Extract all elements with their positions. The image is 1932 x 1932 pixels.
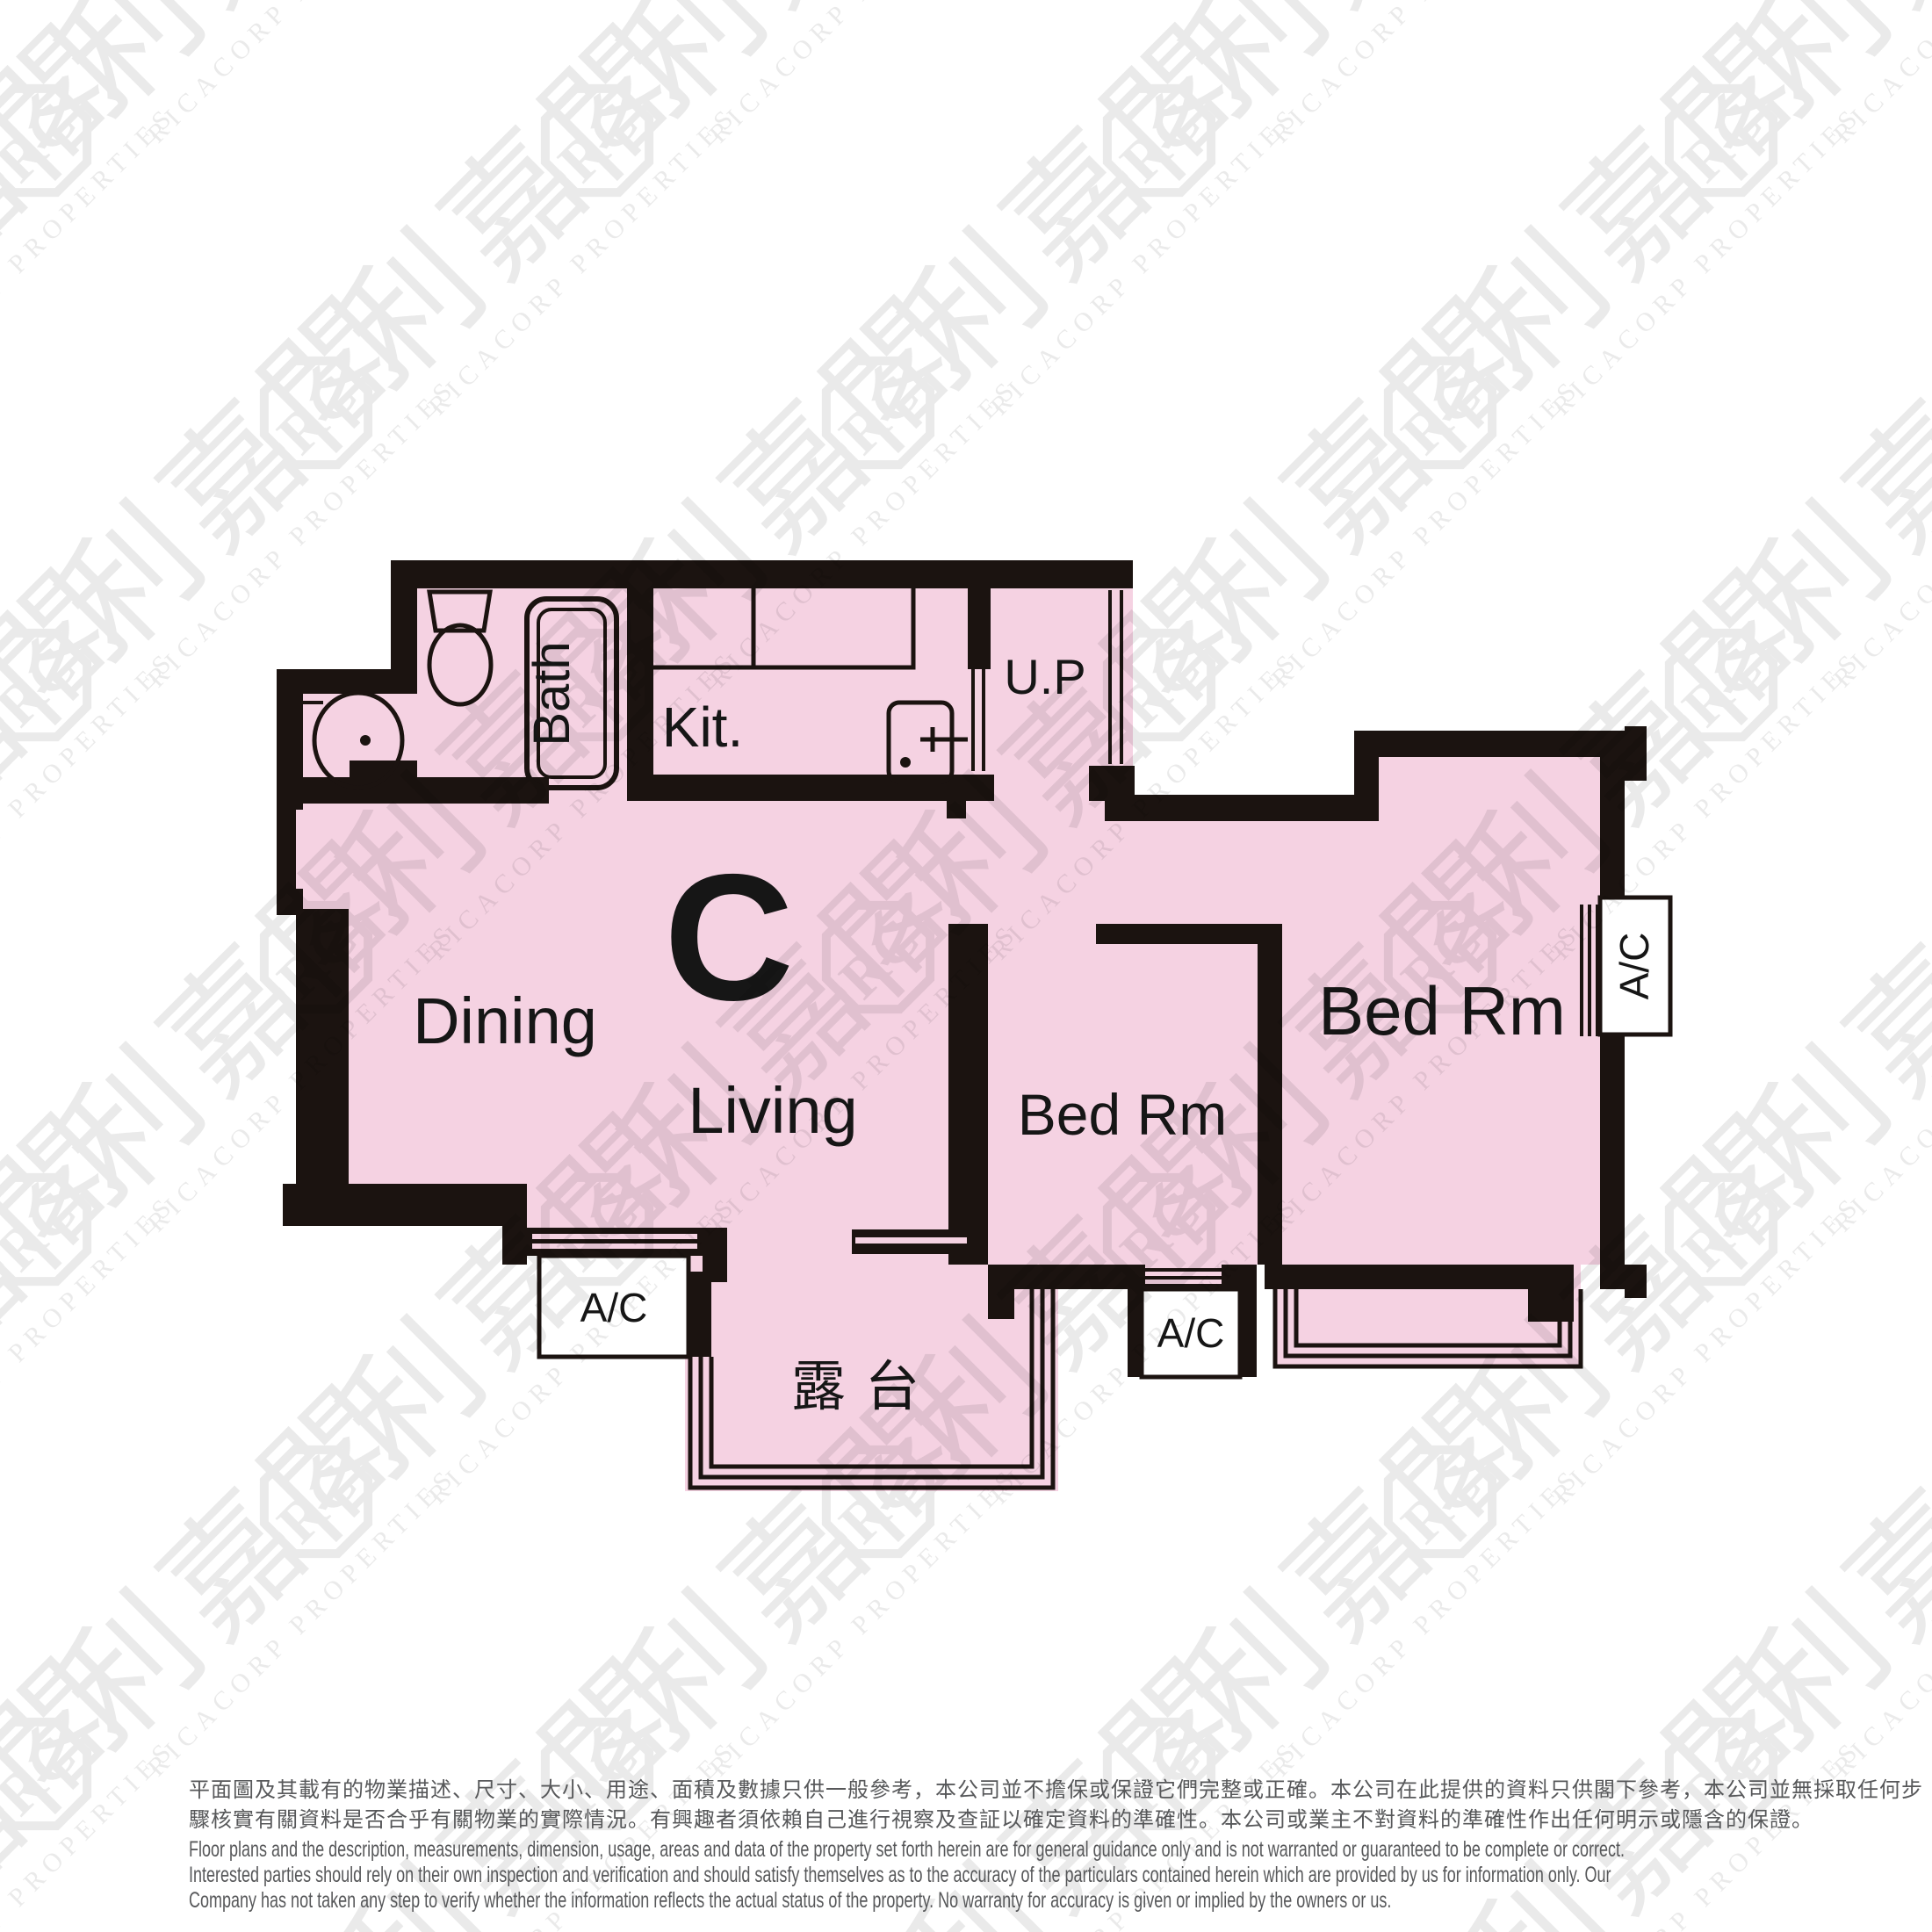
disclaimer-line: 驟核實有關資料是否合乎有關物業的實際情況。有興趣者須依賴自己進行視察及查証以確定… — [189, 1806, 1923, 1835]
disclaimer-line: 平面圖及其載有的物業描述、尺寸、大小、用途、面積及數據只供一般參考，本公司並不擔… — [189, 1776, 1923, 1806]
wall-segment — [1265, 1265, 1528, 1289]
wall-segment — [968, 588, 991, 669]
disclaimer-line: Interested parties should rely on their … — [189, 1863, 1625, 1888]
wall-segment — [1096, 924, 1269, 944]
basin-drain-icon — [360, 735, 371, 746]
floorplan-page: C Dining Living Kit. Bath U.P Bed Rm Bed… — [0, 0, 1932, 1932]
wall-segment — [688, 1272, 711, 1357]
disclaimer-english: Floor plans and the description, measure… — [189, 1837, 1932, 1914]
ac-label: A/C — [1611, 933, 1657, 1000]
wall-segment — [391, 588, 417, 669]
balcony-door-window — [855, 1237, 967, 1244]
disclaimer-chinese: 平面圖及其載有的物業描述、尺寸、大小、用途、面積及數據只供一般參考，本公司並不擔… — [189, 1776, 1923, 1835]
disclaimer-line: Floor plans and the description, measure… — [189, 1837, 1625, 1863]
wall-segment — [277, 669, 417, 694]
dining-label: Dining — [413, 984, 597, 1057]
floorplan-canvas: C Dining Living Kit. Bath U.P Bed Rm Bed… — [0, 0, 1932, 1932]
kitchen-sink-drain — [900, 757, 911, 768]
wall-segment — [283, 1184, 502, 1226]
disclaimer-line: Company has not taken any step to verify… — [189, 1888, 1625, 1914]
